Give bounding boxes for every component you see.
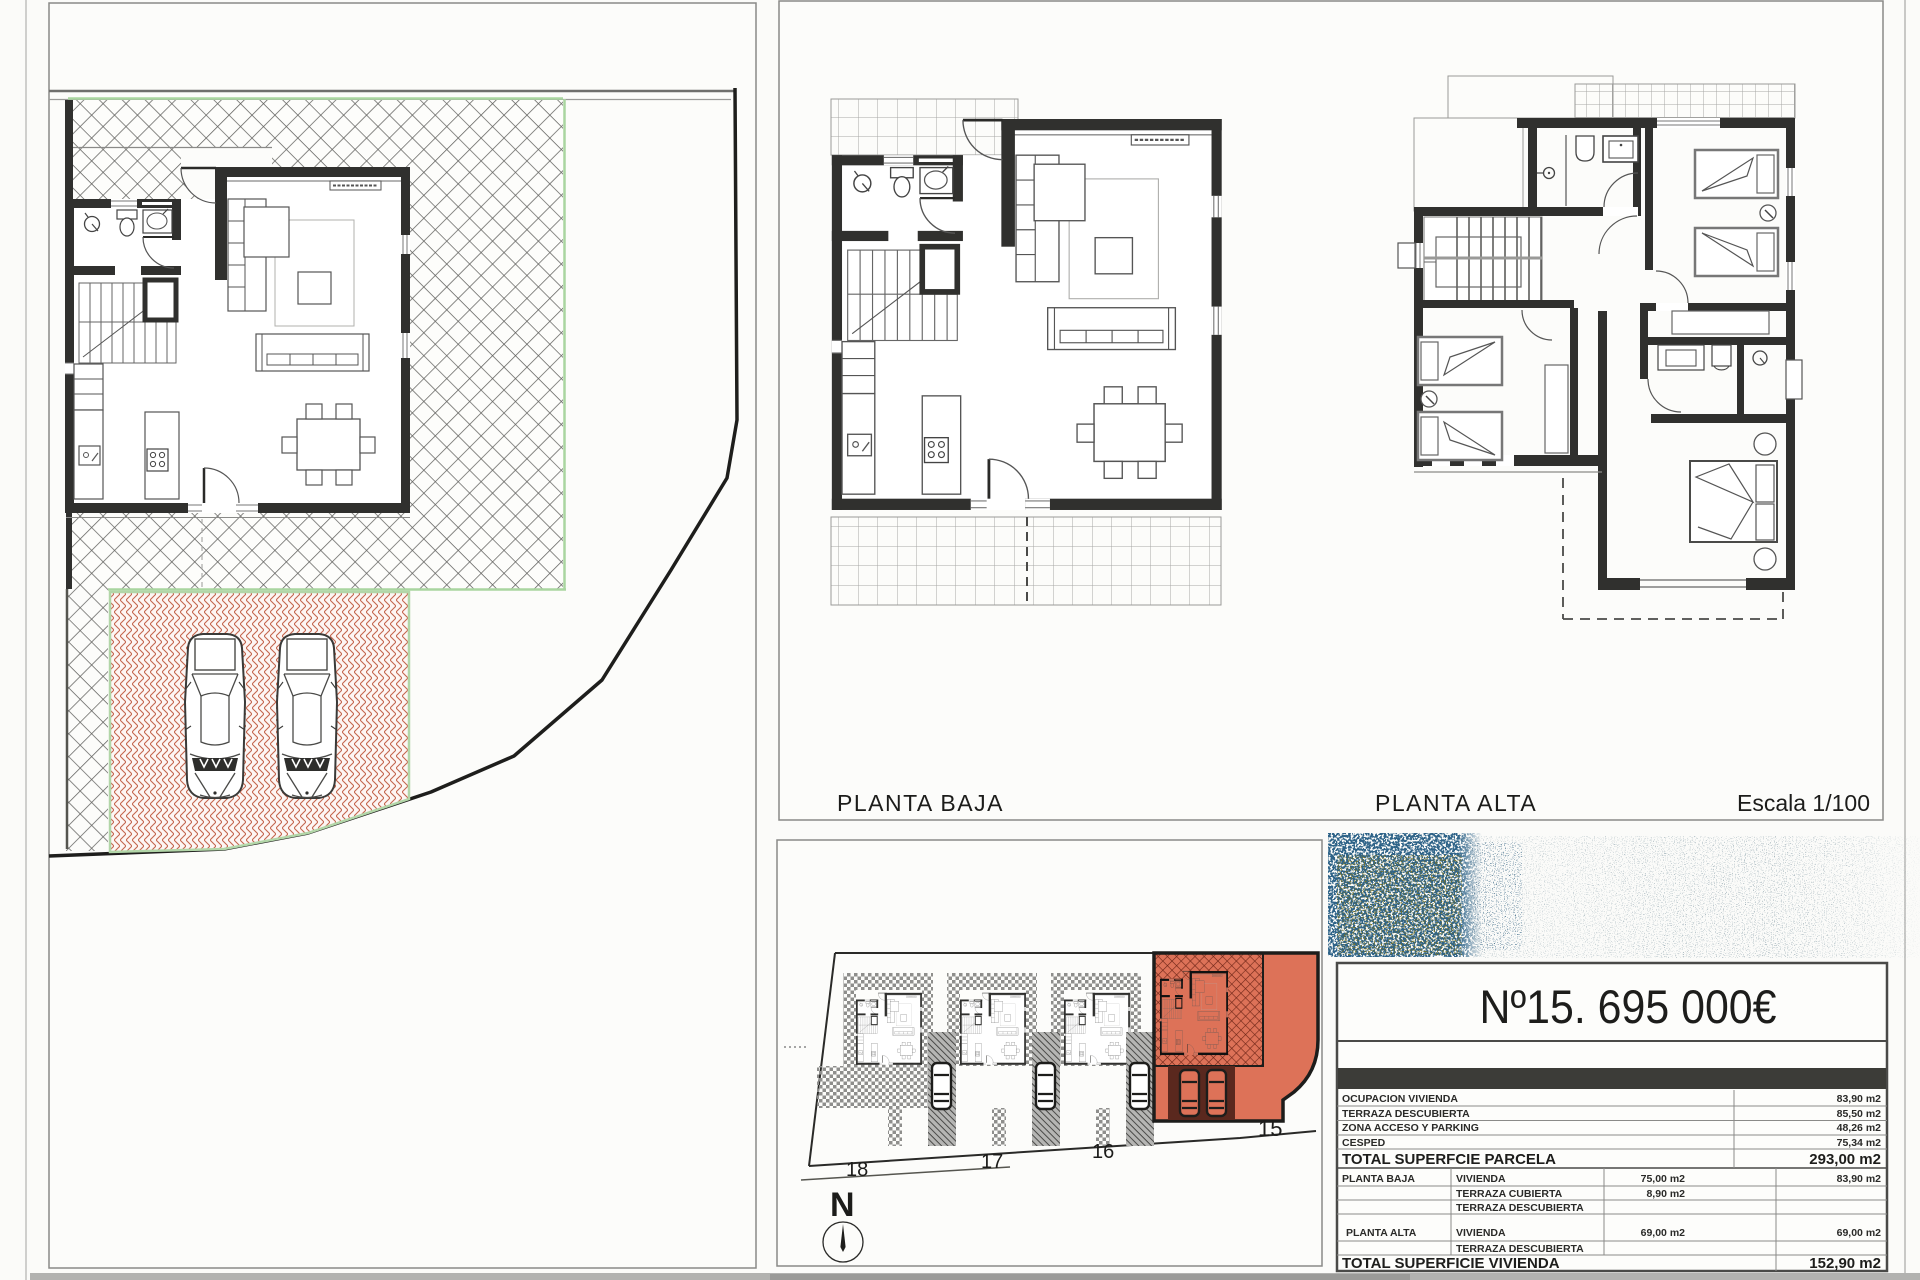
svg-text:PLANTA BAJA: PLANTA BAJA	[1342, 1173, 1415, 1185]
svg-text:PLANTA BAJA: PLANTA BAJA	[837, 790, 1004, 816]
svg-text:85,50 m2: 85,50 m2	[1837, 1108, 1882, 1120]
svg-text:Escala 1/100: Escala 1/100	[1737, 790, 1870, 816]
svg-text:75,00 m2: 75,00 m2	[1641, 1173, 1686, 1185]
svg-text:TOTAL SUPERFICIE VIVIENDA: TOTAL SUPERFICIE VIVIENDA	[1342, 1255, 1560, 1272]
svg-text:TOTAL SUPERFCIE PARCELA: TOTAL SUPERFCIE PARCELA	[1342, 1151, 1556, 1168]
svg-text:TERRAZA DESCUBIERTA: TERRAZA DESCUBIERTA	[1456, 1202, 1584, 1214]
svg-text:CESPED: CESPED	[1342, 1137, 1386, 1149]
svg-text:TERRAZA CUBIERTA: TERRAZA CUBIERTA	[1456, 1188, 1563, 1200]
svg-text:PLANTA ALTA: PLANTA ALTA	[1375, 790, 1537, 816]
svg-text:OCUPACION VIVIENDA: OCUPACION VIVIENDA	[1342, 1093, 1458, 1105]
svg-text:15: 15	[1258, 1116, 1282, 1141]
svg-text:TERRAZA DESCUBIERTA: TERRAZA DESCUBIERTA	[1456, 1243, 1584, 1255]
svg-text:83,90 m2: 83,90 m2	[1837, 1093, 1882, 1105]
svg-text:PLANTA ALTA: PLANTA ALTA	[1346, 1227, 1417, 1239]
svg-text:Nº15. 695 000€: Nº15. 695 000€	[1480, 980, 1777, 1033]
svg-text:ZONA ACCESO Y PARKING: ZONA ACCESO Y PARKING	[1342, 1122, 1479, 1134]
svg-text:48,26 m2: 48,26 m2	[1837, 1122, 1882, 1134]
svg-text:18: 18	[846, 1159, 868, 1181]
svg-text:152,90 m2: 152,90 m2	[1809, 1255, 1881, 1272]
svg-text:17: 17	[981, 1151, 1003, 1173]
svg-text:83,90 m2: 83,90 m2	[1837, 1173, 1882, 1185]
svg-text:16: 16	[1092, 1141, 1114, 1163]
svg-text:293,00 m2: 293,00 m2	[1809, 1151, 1881, 1168]
svg-text:69,00 m2: 69,00 m2	[1837, 1227, 1882, 1239]
svg-text:75,34 m2: 75,34 m2	[1837, 1137, 1882, 1149]
svg-text:TERRAZA DESCUBIERTA: TERRAZA DESCUBIERTA	[1342, 1108, 1470, 1120]
svg-text:8,90 m2: 8,90 m2	[1646, 1188, 1685, 1200]
svg-text:VIVIENDA: VIVIENDA	[1456, 1227, 1506, 1239]
svg-text:VIVIENDA: VIVIENDA	[1456, 1173, 1506, 1185]
svg-text:N: N	[830, 1186, 855, 1224]
svg-text:69,00 m2: 69,00 m2	[1641, 1227, 1686, 1239]
